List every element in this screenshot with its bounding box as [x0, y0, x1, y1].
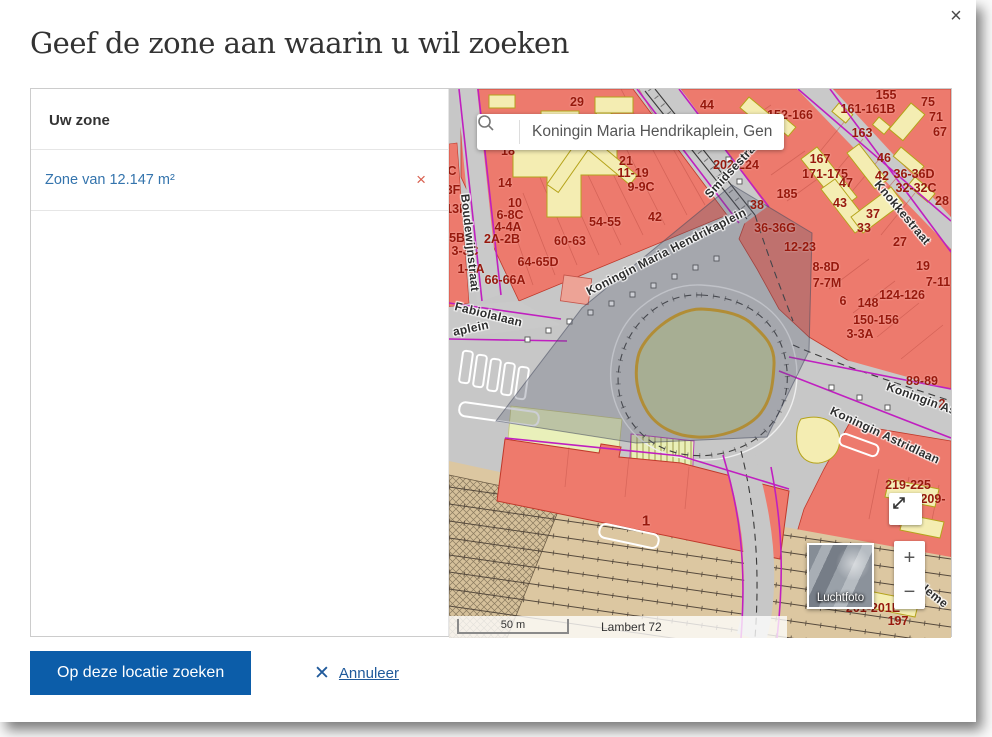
search-location-button[interactable]: Op deze locatie zoeken — [30, 651, 251, 695]
zone-row: Zone van 12.147 m² × — [31, 150, 448, 211]
scale-bar: 50 m — [457, 619, 569, 634]
projection-label: Lambert 72 — [601, 620, 662, 634]
map-attribution-bar: 50 m Lambert 72 — [449, 616, 787, 638]
cancel-action[interactable]: ✕ Annuleer — [314, 651, 399, 695]
close-icon[interactable]: × — [944, 5, 968, 27]
page-title: Geef de zone aan waarin u wil zoeken — [30, 26, 569, 60]
zoom-in-button[interactable]: + — [894, 541, 925, 575]
map-search-box — [477, 114, 784, 150]
search-input[interactable] — [520, 123, 784, 141]
basemap-label: Luchtfoto — [809, 592, 872, 604]
cancel-x-icon: ✕ — [314, 662, 330, 685]
map[interactable]: 2944152-166161-161B155757167163464236-36… — [449, 89, 951, 638]
fullscreen-button[interactable] — [889, 493, 922, 525]
cancel-label: Annuleer — [339, 665, 399, 682]
zone-dialog: × Geef de zone aan waarin u wil zoeken U… — [0, 0, 976, 722]
zoom-out-button[interactable]: − — [894, 575, 925, 609]
zone-pane: Uw zone Zone van 12.147 m² × — [31, 89, 449, 636]
zone-pane-header: Uw zone — [31, 89, 448, 150]
remove-zone-icon[interactable]: × — [416, 170, 426, 190]
map-canvas[interactable] — [449, 89, 951, 638]
zone-link[interactable]: Zone van 12.147 m² — [45, 172, 175, 188]
content-frame: Uw zone Zone van 12.147 m² × — [30, 88, 952, 637]
basemap-toggle-luchtfoto[interactable]: Luchtfoto — [807, 543, 874, 609]
zoom-controls: + − — [894, 541, 925, 609]
